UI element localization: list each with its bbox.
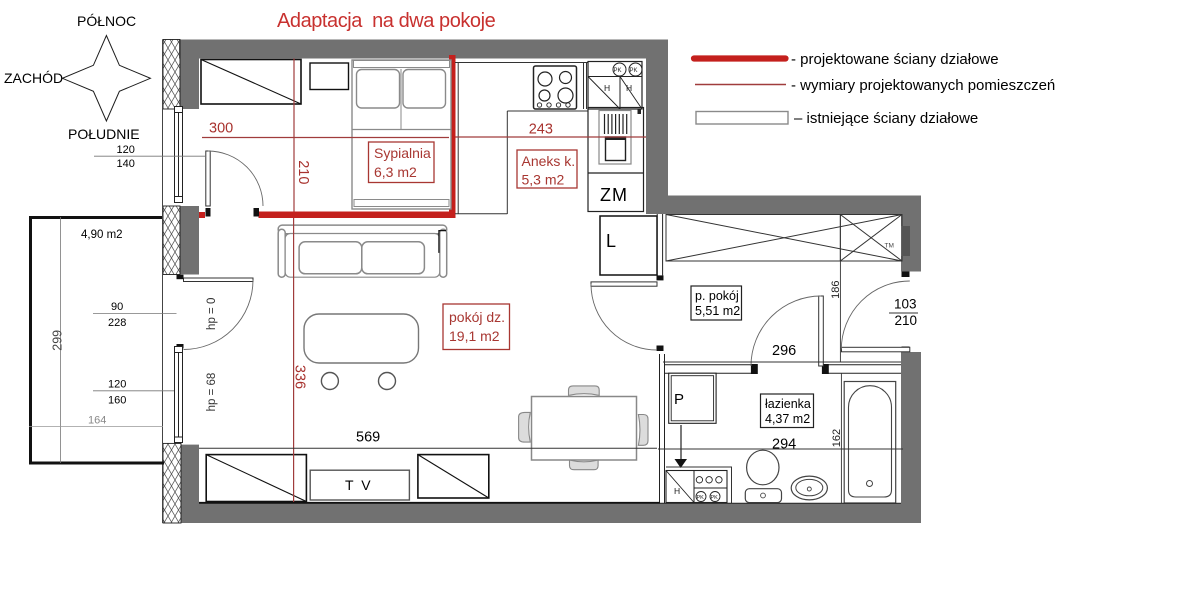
- svg-text:PÓŁNOC: PÓŁNOC: [77, 13, 136, 29]
- svg-text:TM: TM: [885, 243, 894, 250]
- svg-text:162: 162: [831, 429, 843, 447]
- svg-text:L: L: [606, 231, 616, 251]
- svg-text:- projektowane ściany działowe: - projektowane ściany działowe: [791, 51, 999, 68]
- svg-text:228: 228: [108, 317, 126, 329]
- svg-text:103: 103: [894, 297, 917, 312]
- svg-text:294: 294: [772, 437, 796, 453]
- svg-text:Adaptacja na dwa pokoje: Adaptacja na dwa pokoje: [277, 10, 496, 32]
- svg-text:300: 300: [209, 121, 233, 137]
- svg-text:210: 210: [295, 160, 311, 184]
- svg-text:186: 186: [830, 281, 842, 299]
- svg-text:H: H: [604, 83, 610, 93]
- svg-text:H: H: [626, 83, 632, 93]
- svg-text:hp = 68: hp = 68: [206, 373, 218, 412]
- svg-text:łazienka: łazienka: [765, 397, 811, 411]
- svg-text:569: 569: [356, 430, 380, 446]
- svg-text:160: 160: [108, 395, 126, 407]
- svg-text:– istniejące ściany działowe: – istniejące ściany działowe: [794, 110, 978, 127]
- svg-text:90: 90: [111, 301, 123, 313]
- svg-text:hp = 0: hp = 0: [206, 298, 218, 330]
- svg-text:6,3 m2: 6,3 m2: [374, 164, 417, 180]
- svg-text:243: 243: [529, 122, 553, 138]
- svg-text:120: 120: [108, 379, 126, 391]
- svg-text:POŁUDNIE: POŁUDNIE: [68, 126, 140, 142]
- svg-text:Sypialnia: Sypialnia: [374, 145, 431, 161]
- svg-text:ZACHÓD: ZACHÓD: [4, 70, 63, 86]
- svg-text:Aneks k.: Aneks k.: [522, 153, 576, 169]
- svg-text:P: P: [674, 391, 684, 408]
- svg-text:T V: T V: [345, 477, 373, 493]
- svg-text:164: 164: [88, 415, 106, 427]
- svg-text:ZM: ZM: [600, 185, 628, 205]
- svg-text:4,90 m2: 4,90 m2: [81, 229, 123, 241]
- svg-text:5,51 m2: 5,51 m2: [695, 304, 740, 318]
- svg-text:PK: PK: [614, 68, 622, 74]
- svg-text:H: H: [674, 486, 680, 496]
- svg-text:120: 120: [117, 144, 135, 156]
- svg-text:PK: PK: [630, 68, 638, 74]
- svg-text:336: 336: [291, 365, 307, 389]
- svg-text:pokój dz.: pokój dz.: [449, 309, 505, 325]
- svg-text:PK: PK: [697, 495, 705, 501]
- svg-text:- wymiary projektowanych pomie: - wymiary projektowanych pomieszczeń: [791, 77, 1055, 94]
- svg-text:5,3 m2: 5,3 m2: [522, 172, 565, 188]
- svg-text:p. pokój: p. pokój: [695, 289, 739, 303]
- svg-text:4,37 m2: 4,37 m2: [765, 412, 810, 426]
- svg-text:296: 296: [772, 343, 796, 359]
- svg-text:PK: PK: [711, 495, 719, 501]
- svg-text:299: 299: [51, 330, 65, 351]
- svg-text:140: 140: [117, 158, 135, 170]
- svg-text:19,1 m2: 19,1 m2: [449, 328, 500, 344]
- svg-text:210: 210: [895, 313, 918, 328]
